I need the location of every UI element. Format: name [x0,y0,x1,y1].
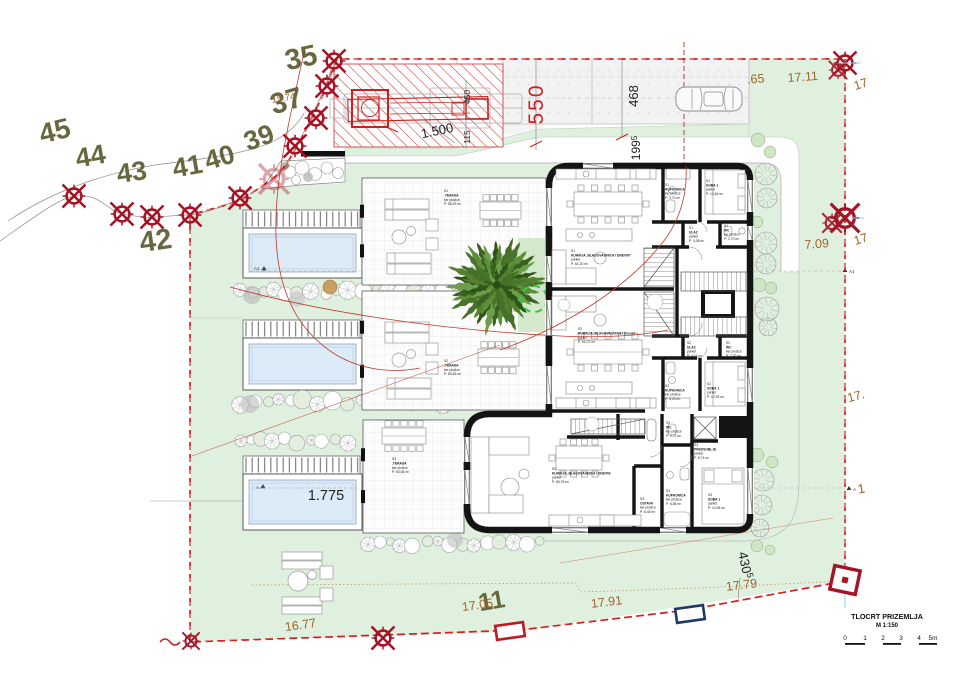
svg-text:A1: A1 [849,269,855,274]
svg-text:A: A [853,487,856,492]
svg-text:3: 3 [899,635,903,642]
svg-text:468: 468 [626,85,641,107]
svg-text:115: 115 [462,130,472,144]
svg-text:7.09: 7.09 [804,236,829,252]
svg-text:A: A [256,485,259,490]
svg-text:5m: 5m [928,635,937,642]
svg-text:43: 43 [115,155,149,189]
svg-text:.65: .65 [747,71,765,86]
svg-text:41: 41 [170,149,205,184]
svg-text:TLOCRT PRIZEMLJA: TLOCRT PRIZEMLJA [851,612,923,621]
svg-text:44: 44 [73,139,108,174]
svg-text:1: 1 [863,635,867,642]
svg-text:4: 4 [917,635,921,642]
svg-text:A1: A1 [254,266,260,271]
svg-text:35: 35 [282,39,320,77]
svg-text:0: 0 [843,635,847,642]
svg-text:2: 2 [881,635,885,642]
svg-text:1.775: 1.775 [308,488,344,504]
svg-text:M 1:150: M 1:150 [876,623,899,629]
svg-text:17.11: 17.11 [787,69,818,85]
svg-text:42: 42 [138,223,174,259]
svg-text:550: 550 [525,83,548,124]
svg-text:450: 450 [462,90,472,104]
